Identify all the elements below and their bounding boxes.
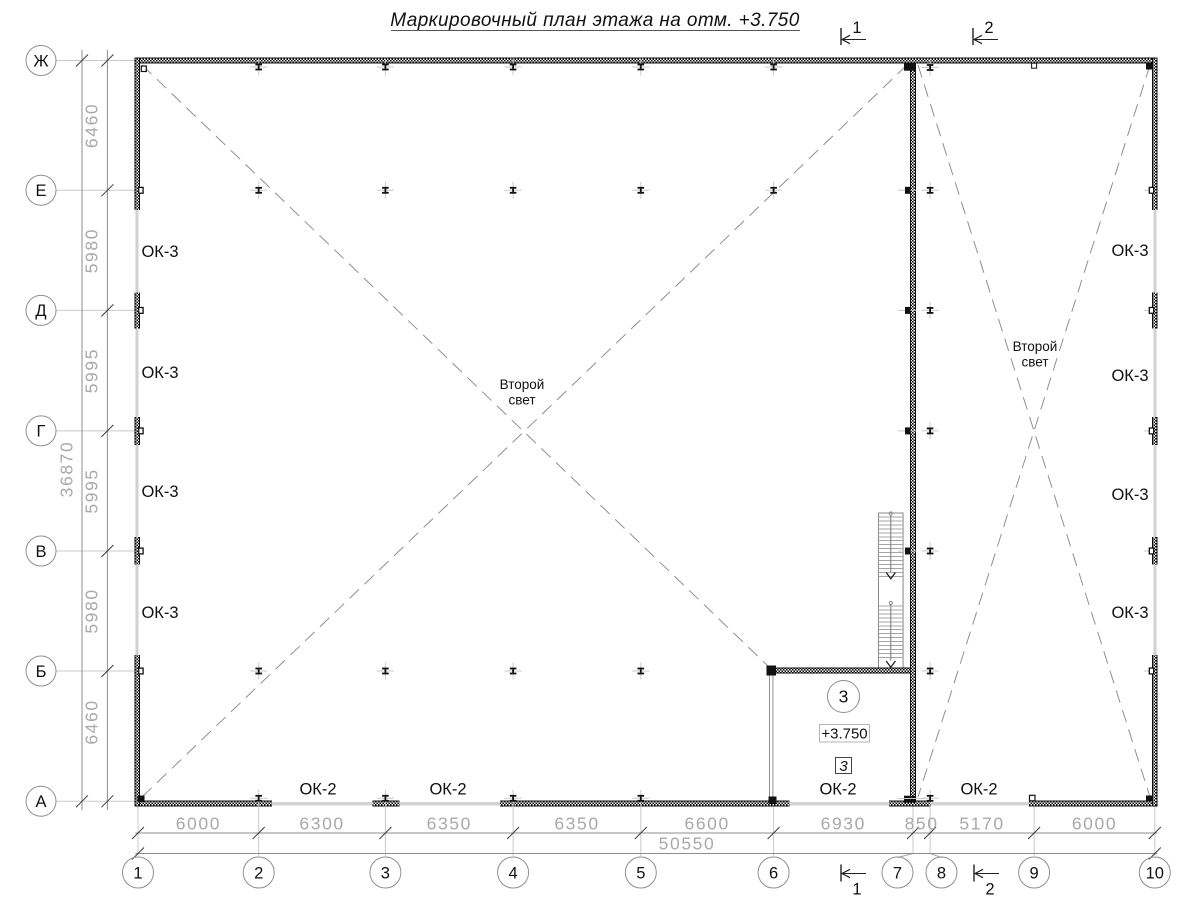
svg-text:6460: 6460 <box>82 699 102 744</box>
svg-text:2: 2 <box>985 881 994 899</box>
svg-text:3: 3 <box>839 687 849 707</box>
svg-text:850: 850 <box>905 814 939 834</box>
svg-text:5980: 5980 <box>82 228 102 273</box>
svg-text:6460: 6460 <box>82 103 102 148</box>
svg-text:50550: 50550 <box>659 834 716 854</box>
svg-text:Г: Г <box>37 423 46 441</box>
svg-text:ОК-3: ОК-3 <box>1111 604 1148 622</box>
svg-text:2: 2 <box>984 19 993 37</box>
svg-text:6600: 6600 <box>685 814 730 834</box>
svg-text:ОК-3: ОК-3 <box>1111 486 1148 504</box>
svg-text:Маркировочный план этажа на от: Маркировочный план этажа на отм. +3.750 <box>390 10 799 31</box>
svg-text:1: 1 <box>133 864 142 882</box>
svg-text:ОК-2: ОК-2 <box>819 781 856 799</box>
svg-text:5995: 5995 <box>82 348 102 393</box>
svg-text:5170: 5170 <box>959 814 1004 834</box>
svg-text:ОК-3: ОК-3 <box>141 483 178 501</box>
svg-text:6: 6 <box>769 864 778 882</box>
svg-text:3: 3 <box>839 758 848 775</box>
svg-text:ОК-3: ОК-3 <box>1111 242 1148 260</box>
svg-text:А: А <box>35 793 46 811</box>
svg-text:6300: 6300 <box>299 814 344 834</box>
svg-text:10: 10 <box>1146 864 1164 882</box>
svg-text:Второй: Второй <box>500 377 545 392</box>
svg-text:ОК-2: ОК-2 <box>960 781 997 799</box>
svg-text:4: 4 <box>509 864 518 882</box>
svg-text:1: 1 <box>852 881 861 899</box>
svg-text:ОК-3: ОК-3 <box>1111 367 1148 385</box>
svg-text:5980: 5980 <box>82 588 102 633</box>
svg-text:Е: Е <box>35 182 46 200</box>
svg-text:5995: 5995 <box>82 468 102 513</box>
svg-text:6000: 6000 <box>176 814 221 834</box>
svg-text:Б: Б <box>36 663 47 681</box>
svg-text:свет: свет <box>508 393 535 408</box>
svg-text:5: 5 <box>636 864 645 882</box>
svg-text:свет: свет <box>1021 355 1048 370</box>
svg-text:ОК-3: ОК-3 <box>141 604 178 622</box>
svg-text:Второй: Второй <box>1013 339 1058 354</box>
svg-text:ОК-2: ОК-2 <box>429 781 466 799</box>
svg-text:6350: 6350 <box>554 814 599 834</box>
svg-text:7: 7 <box>893 864 902 882</box>
svg-text:3: 3 <box>381 864 390 882</box>
svg-text:6000: 6000 <box>1072 814 1117 834</box>
svg-text:Д: Д <box>35 302 46 320</box>
svg-text:ОК-3: ОК-3 <box>141 364 178 382</box>
svg-text:6930: 6930 <box>821 814 866 834</box>
svg-text:ОК-2: ОК-2 <box>299 781 336 799</box>
svg-text:36870: 36870 <box>57 441 77 498</box>
svg-text:+3.750: +3.750 <box>821 726 867 743</box>
svg-text:ОК-3: ОК-3 <box>141 243 178 261</box>
svg-text:1: 1 <box>852 19 861 37</box>
svg-text:В: В <box>35 543 46 561</box>
svg-text:9: 9 <box>1030 864 1039 882</box>
svg-text:2: 2 <box>254 864 263 882</box>
svg-text:8: 8 <box>937 864 946 882</box>
svg-text:6350: 6350 <box>427 814 472 834</box>
svg-text:Ж: Ж <box>33 52 49 70</box>
